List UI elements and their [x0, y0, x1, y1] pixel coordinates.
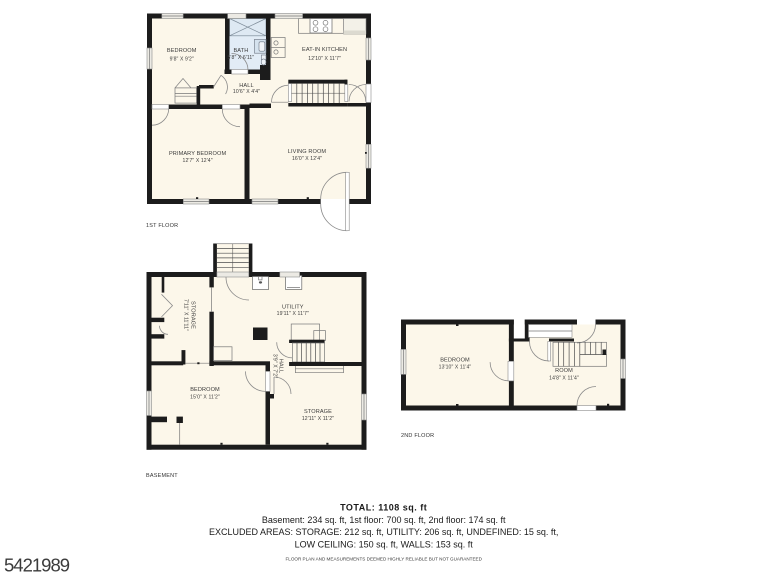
svg-text:EAT-IN KITCHEN: EAT-IN KITCHEN	[302, 47, 347, 53]
svg-text:12'11" X 11'2": 12'11" X 11'2"	[302, 416, 334, 422]
svg-text:STORAGE: STORAGE	[304, 409, 332, 415]
svg-text:BEDROOM: BEDROOM	[440, 357, 470, 363]
svg-text:2ND FLOOR: 2ND FLOOR	[401, 433, 434, 439]
svg-text:19'11" X 11'7": 19'11" X 11'7"	[277, 311, 309, 317]
svg-text:7'11" X 11'11": 7'11" X 11'11"	[183, 299, 189, 331]
svg-text:ROOM: ROOM	[555, 368, 573, 374]
svg-text:BEDROOM: BEDROOM	[190, 387, 220, 393]
svg-text:LOW CEILING: 150 sq. ft, WALLS: LOW CEILING: 150 sq. ft, WALLS: 153 sq. …	[295, 540, 474, 550]
svg-text:9'8" X 9'2": 9'8" X 9'2"	[170, 56, 194, 62]
svg-text:5421989: 5421989	[4, 555, 70, 576]
svg-text:BATH: BATH	[233, 48, 248, 54]
svg-text:15'0" X 11'2": 15'0" X 11'2"	[190, 394, 220, 400]
svg-text:TOTAL: 1108 sq. ft: TOTAL: 1108 sq. ft	[340, 503, 427, 513]
svg-text:5'8" X 6'11": 5'8" X 6'11"	[228, 55, 255, 61]
svg-text:Basement: 234 sq. ft, 1st floo: Basement: 234 sq. ft, 1st floor: 700 sq.…	[262, 515, 506, 525]
svg-text:PRIMARY BEDROOM: PRIMARY BEDROOM	[169, 151, 226, 157]
svg-text:EXCLUDED AREAS: STORAGE: 212 s: EXCLUDED AREAS: STORAGE: 212 sq. ft, UTI…	[209, 527, 558, 537]
svg-text:HALL: HALL	[239, 83, 253, 89]
svg-text:UTILITY: UTILITY	[282, 305, 304, 311]
svg-text:1ST FLOOR: 1ST FLOOR	[146, 223, 178, 229]
svg-text:12'7" X 12'4": 12'7" X 12'4"	[183, 158, 213, 164]
svg-text:12'10" X 11'7": 12'10" X 11'7"	[308, 56, 341, 62]
svg-text:FLOOR PLAN AND MEASUREMENTS DE: FLOOR PLAN AND MEASUREMENTS DEEMED HIGHL…	[285, 557, 482, 562]
svg-text:3'9" X 7'2": 3'9" X 7'2"	[272, 354, 278, 378]
svg-text:13'10" X 11'4": 13'10" X 11'4"	[439, 365, 472, 371]
svg-text:STORAGE: STORAGE	[190, 301, 196, 329]
svg-text:LIVING ROOM: LIVING ROOM	[288, 149, 327, 155]
svg-text:14'8" X 11'4": 14'8" X 11'4"	[549, 375, 579, 381]
svg-text:10'6" X 4'4": 10'6" X 4'4"	[233, 89, 260, 95]
svg-text:BEDROOM: BEDROOM	[167, 48, 197, 54]
svg-text:BASEMENT: BASEMENT	[146, 473, 178, 479]
svg-text:16'0" X 12'4": 16'0" X 12'4"	[292, 156, 322, 162]
